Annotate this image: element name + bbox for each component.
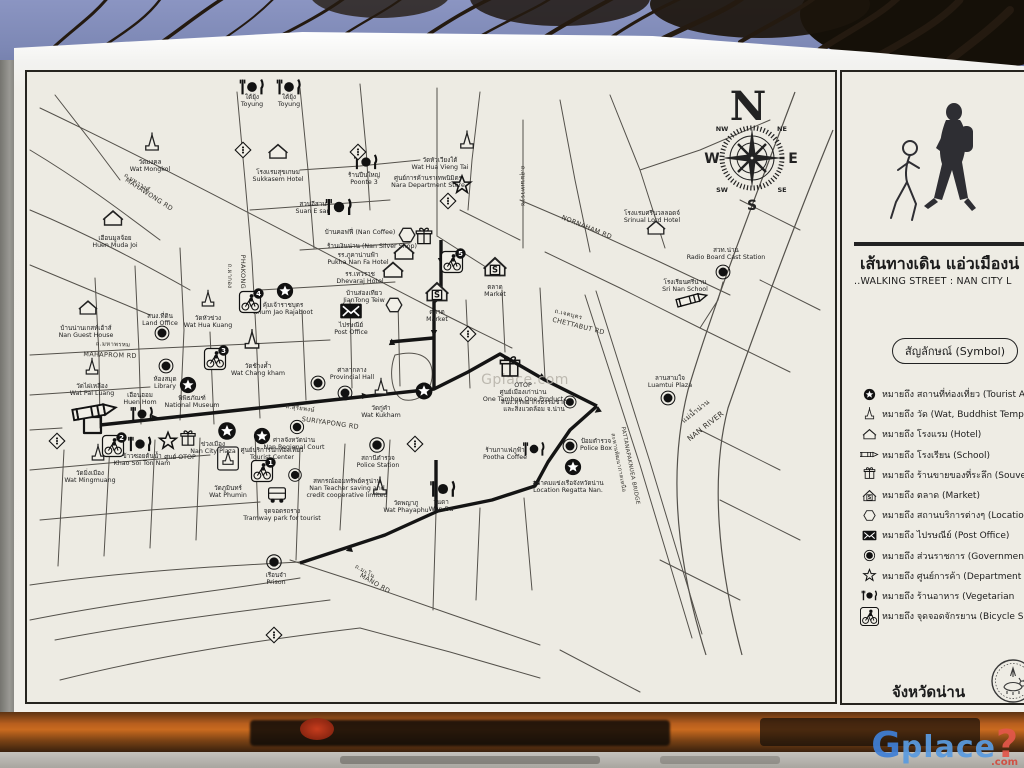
- road-label: ถ.ผากอง: [226, 264, 233, 289]
- legend-panel: เส้นทางเดิน แอ่วเมืองน่ ..WALKING STREET…: [840, 70, 1024, 705]
- poi-label: เรือนจำPrison: [266, 571, 287, 586]
- poi-star-solid: ข่วงเมืองNan City Plaza: [190, 422, 236, 455]
- poi-bike: 3: [205, 345, 229, 369]
- compass-n: N: [730, 83, 767, 130]
- road-label: MAHAWONG RD: [124, 176, 175, 213]
- poi-star-outline: ศูนย์การค้านราเทพนิมิตรNara Department S…: [391, 174, 471, 192]
- poi-gov: สหกรณ์ออมทรัพย์ครูน่านNan Teacher saving…: [289, 469, 388, 499]
- poi-market: ตลาดMarket: [426, 283, 449, 323]
- star-outline-icon: [856, 566, 882, 585]
- legend-item: หมายถึง ไปรษณีย์ (Post Office): [856, 525, 1024, 545]
- poi-gov: สวท.น่านRadio Board Cast Station: [687, 247, 766, 279]
- poi-label: พิพิธภัณฑ์National Museum: [165, 394, 220, 409]
- poi-label: สวนอีสานSuan E san: [296, 200, 331, 215]
- hex-icon: [856, 506, 882, 525]
- legend-item: หมายถึง ตลาด (Market): [856, 485, 1024, 505]
- poi-label: รร.เทวราชDhevaraj Hotel: [336, 271, 383, 285]
- legend-item: หมายถึง ศูนย์การค้า (Department S: [856, 566, 1024, 586]
- rest-icon: [856, 586, 882, 605]
- bike-station-number: 4: [256, 290, 261, 298]
- poi-diamond: [235, 142, 251, 158]
- photo-of-map-sign: N W E S NW NE SW SE Gplace.com ถ.มหาวงศ์…: [0, 0, 1024, 768]
- poi-star-solid: สมาคมแข่งเรือจังหวัดน่านLocation Regatta…: [532, 459, 604, 494]
- poi-label: โรงเรียนศรีน่านSri Nan School: [662, 278, 708, 293]
- legend-item-label: หมายถึง สถานบริการต่างๆ (Locatio: [882, 508, 1024, 522]
- svg-text:SE: SE: [777, 186, 786, 194]
- svg-text:SW: SW: [716, 186, 728, 194]
- poi-house: โรงแรมสุขเกษมSukkasem Hotel: [253, 145, 304, 184]
- poi-label: ร้านปืนใหญ่Poonte 3: [348, 171, 380, 186]
- sign-title-english: ..WALKING STREET : NAN CITY L: [854, 276, 1012, 287]
- symbol-header: สัญลักษณ์ (Symbol): [892, 338, 1018, 364]
- poi-label: วัดกู่คำWat Kukham: [361, 405, 401, 419]
- market-icon: [856, 486, 882, 505]
- gplace-logo-watermark: Gplace? .com: [871, 725, 1018, 768]
- compass-rose: N W E S NW NE SW SE: [704, 83, 798, 214]
- poi-pencil: โรงเรียนศรีน่านSri Nan School: [662, 278, 708, 307]
- poi-label: สมาคมแข่งเรือจังหวัดน่านLocation Regatta…: [532, 479, 604, 494]
- gift-icon: [856, 465, 882, 484]
- title-divider-line: [854, 242, 1024, 246]
- legend-item: หมายถึง สถานที่ท่องเที่ยว (Tourist Att: [856, 384, 1024, 404]
- poi-label: ใต้ยุ้งToyung: [240, 93, 263, 108]
- bike-station-number: 3: [221, 347, 226, 355]
- poi-label: บ้านน่านเกสท์เฮ้าส์Nan Guest House: [59, 324, 114, 339]
- poi-wat: วัดหัวเวียงใต้Wat Hua Vieng Tai: [412, 130, 474, 171]
- legend-list: หมายถึง สถานที่ท่องเที่ยว (Tourist Attหม…: [856, 384, 1024, 626]
- poi-label: ตลาดMarket: [426, 309, 448, 323]
- legend-item: หมายถึง โรงแรม (Hotel): [856, 424, 1024, 444]
- poi-pencil: [72, 402, 116, 420]
- poi-rest: เฮือนฮอมHuen Hom: [123, 391, 156, 421]
- poi-label: ข่วงเมืองNan City Plaza: [190, 440, 236, 455]
- road-label: ถ.มหาพรหม: [96, 340, 131, 348]
- poi-label: โรงแรมสุขเกษมSukkasem Hotel: [253, 168, 304, 183]
- poi-label: เฮือนมูลจ้อยHuen Muda Joi: [92, 234, 138, 249]
- house-icon: [856, 425, 882, 444]
- legend-item-label: หมายถึง ร้านขายของที่ระลึก (Souven: [882, 468, 1024, 482]
- poi-rest: ใต้ยุ้งToyung: [240, 80, 263, 108]
- poi-wat: วัดกู่คำWat Kukham: [361, 378, 401, 419]
- legend-item: หมายถึง ส่วนราชการ (Government: [856, 546, 1024, 566]
- legend-item-label: หมายถึง สถานที่ท่องเที่ยว (Tourist Att: [882, 387, 1024, 401]
- province-row: จังหวัดน่าน: [882, 658, 1024, 718]
- legend-item-label: หมายถึง ตลาด (Market): [882, 488, 980, 502]
- legend-item-label: หมายถึง จุดจอดจักรยาน (Bicycle S: [882, 609, 1023, 623]
- poi-rest: ร้านกาแฟภูฟ้าPootha Coffee: [483, 442, 543, 461]
- poi-bike: 2: [103, 432, 127, 456]
- poi-wat: วัดช้างค้ำWat Chang kham: [231, 329, 285, 377]
- poi-rest: วันดาWun Da: [429, 481, 454, 513]
- gplace-logo-place: place: [901, 730, 996, 765]
- poi-house: โรงแรมศรีนวลลอดจ์Srinual Lord Hotel: [624, 209, 681, 234]
- poi-diamond: [407, 436, 423, 452]
- poi-label: ลานสามใจLuamtui Plaza: [648, 374, 692, 389]
- nan-province-seal-icon: [990, 658, 1024, 708]
- legend-item-label: หมายถึง โรงแรม (Hotel): [882, 427, 981, 441]
- star-solid-icon: [856, 385, 882, 404]
- poi-label: สถานีตำรวจPolice Station: [357, 454, 400, 469]
- poi-label: วัดหัวเวียงใต้Wat Hua Vieng Tai: [412, 156, 469, 171]
- post-icon: [856, 526, 882, 545]
- legend-item-label: หมายถึง โรงเรียน (School): [882, 448, 990, 462]
- bike-station-number: 5: [458, 250, 463, 258]
- poi-label: บ้านคอฟฟี่ (Nan Coffee): [325, 227, 396, 236]
- road-label: ถ.สุมนเทวราช: [519, 166, 526, 207]
- road-label: PATTANAPAKNUEA BRIDGE: [619, 426, 640, 505]
- legend-item: หมายถึง จุดจอดจักรยาน (Bicycle S: [856, 606, 1024, 626]
- poi-wat: วัดไผ่เหลืองWat Pai Luang: [70, 358, 115, 397]
- wat-icon: [856, 405, 882, 424]
- poi-label: ป้อมตำรวจPolice Box: [580, 437, 612, 452]
- poi-house: เฮือนมูลจ้อยHuen Muda Joi: [92, 211, 138, 249]
- poi-bike: 1: [252, 457, 276, 481]
- poi-label: ห้องสมุดLibrary: [153, 375, 176, 390]
- legend-item: หมายถึง โรงเรียน (School): [856, 445, 1024, 465]
- poi-label: วันดาWun Da: [429, 499, 454, 513]
- poi-label: ไปรษณีย์Post Office: [334, 321, 368, 336]
- poi-bike: 4: [240, 288, 264, 312]
- poi-gov: สนง.ที่ดินLand Office: [142, 311, 178, 340]
- poi-market: ตลาดMarket: [484, 258, 507, 298]
- bike-icon: [856, 607, 882, 626]
- poi-label: วัดไผ่เหลืองWat Pai Luang: [70, 382, 115, 397]
- poi-label: วัดภูมินทร์Wat Phumin: [209, 484, 247, 499]
- poi-label: จุดจอดรถรางTramway park for tourist: [242, 508, 321, 522]
- city-map-panel: N W E S NW NE SW SE Gplace.com ถ.มหาวงศ์…: [25, 70, 837, 704]
- legend-item-label: หมายถึง ศูนย์การค้า (Department S: [882, 569, 1024, 583]
- pencil-icon: [856, 445, 882, 464]
- nan-river: [677, 92, 833, 655]
- legend-item-label: หมายถึง ร้านอาหาร (Vegetarian: [882, 589, 1014, 603]
- legend-item-label: หมายถึง วัด (Wat, Buddhist Temple: [882, 407, 1024, 421]
- poi-label: สวท.น่านRadio Board Cast Station: [687, 247, 766, 261]
- poi-hex: บ้านคอฟฟี่ (Nan Coffee): [325, 227, 415, 242]
- road-label: MAHAPROM RD: [83, 350, 137, 360]
- poi-label: เฮือนฮอมHuen Hom: [123, 391, 156, 406]
- poi-rest: ร้านปืนใหญ่Poonte 3: [348, 155, 380, 186]
- gplace-logo-g: G: [871, 725, 901, 766]
- road-label: SURIYAPONG RD: [301, 415, 359, 431]
- poi-gov: ห้องสมุดLibrary: [153, 359, 176, 390]
- bike-station-number: 2: [119, 434, 124, 442]
- poi-label: วัดมงคลWat Mongkol: [130, 159, 171, 173]
- svg-text:NE: NE: [777, 125, 787, 133]
- poi-gov: ป้อมตำรวจPolice Box: [563, 437, 612, 453]
- poi-label: สนง.ที่ดินLand Office: [142, 311, 178, 327]
- poi-post: ไปรษณีย์Post Office: [334, 304, 368, 336]
- poi-label: บ้านส่องเทียวJianTong Teiw: [342, 289, 385, 304]
- poi-label: ร้านเงินน่าน (Nan Silver Shop): [327, 242, 417, 250]
- poi-bike: 5: [442, 248, 466, 272]
- concrete-post: [0, 60, 16, 768]
- province-name: จังหวัดน่าน: [892, 680, 965, 704]
- poi-label: วัดพญาภูWat Phayaphu: [383, 500, 428, 514]
- legend-item: หมายถึง วัด (Wat, Buddhist Temple: [856, 404, 1024, 424]
- poi-label: ตลาดMarket: [484, 284, 506, 298]
- poi-wat: วัดมงคลWat Mongkol: [130, 132, 171, 173]
- poi-diamond: [49, 433, 65, 449]
- compass-e: E: [788, 151, 798, 167]
- poi-label: คุ้มเจ้าราชบุตรKhum Jao Rajaboot: [253, 301, 313, 316]
- poi-wat: วัดหัวข่วงWat Hua Kuang: [184, 290, 232, 329]
- legend-item: หมายถึง สถานบริการต่างๆ (Locatio: [856, 505, 1024, 525]
- poi-diamond: [440, 193, 456, 209]
- legend-item-label: หมายถึง ไปรษณีย์ (Post Office): [882, 528, 1009, 542]
- poi-label: ร้านกาแฟภูฟ้าPootha Coffee: [483, 446, 527, 461]
- city-map: N W E S NW NE SW SE Gplace.com ถ.มหาวงศ์…: [27, 72, 835, 702]
- legend-item: หมายถึง ร้านอาหาร (Vegetarian: [856, 586, 1024, 606]
- poi-label: ศูนย์การค้านราเทพนิมิตรNara Department S…: [391, 174, 465, 189]
- bike-station-number: 1: [268, 459, 273, 467]
- poi-rest: ใต้ยุ้งToyung: [277, 80, 300, 108]
- compass-w: W: [704, 151, 719, 167]
- poi-label: ศูนย์ OTOP: [164, 453, 196, 461]
- gov-icon: [856, 546, 882, 565]
- poi-label: วัดหัวข่วงWat Hua Kuang: [184, 315, 232, 329]
- poi-star-solid: [416, 383, 433, 400]
- poi-label: ใต้ยุ้งToyung: [277, 93, 300, 108]
- poi-diamond: [350, 144, 366, 160]
- poi-gov: สถานีตำรวจPolice Station: [357, 438, 400, 469]
- poi-gift: [181, 431, 195, 445]
- poi-label: ศาลากลางProvincial Hall: [330, 367, 375, 381]
- poi-label: โรงแรมศรีนวลลอดจ์Srinual Lord Hotel: [624, 209, 681, 224]
- walking-street-sign-board: N W E S NW NE SW SE Gplace.com ถ.มหาวงศ์…: [14, 30, 1024, 730]
- legend-item-label: หมายถึง ส่วนราชการ (Government: [882, 549, 1024, 563]
- sign-title-thai: เส้นทางเดิน แอ่วเมืองน่: [860, 252, 1019, 277]
- red-reflection: [300, 718, 334, 740]
- poi-label: รร.ภูคาน่านฟ้าPukha Nan Fa Hotel: [327, 251, 389, 266]
- svg-text:NW: NW: [716, 125, 729, 133]
- poi-label: สหกรณ์ออมทรัพย์ครูน่านNan Teacher saving…: [306, 477, 387, 499]
- legend-item: หมายถึง ร้านขายของที่ระลึก (Souven: [856, 465, 1024, 485]
- walking-people-pictogram: [876, 90, 1006, 242]
- compass-s: S: [747, 198, 757, 214]
- poi-house: บ้านน่านเกสท์เฮ้าส์Nan Guest House: [59, 301, 114, 339]
- poi-gov: เรือนจำPrison: [266, 555, 287, 586]
- poi-label: วัดช้างค้ำWat Chang kham: [231, 361, 285, 377]
- poi-rest: สวนอีสานSuan E san: [296, 199, 351, 215]
